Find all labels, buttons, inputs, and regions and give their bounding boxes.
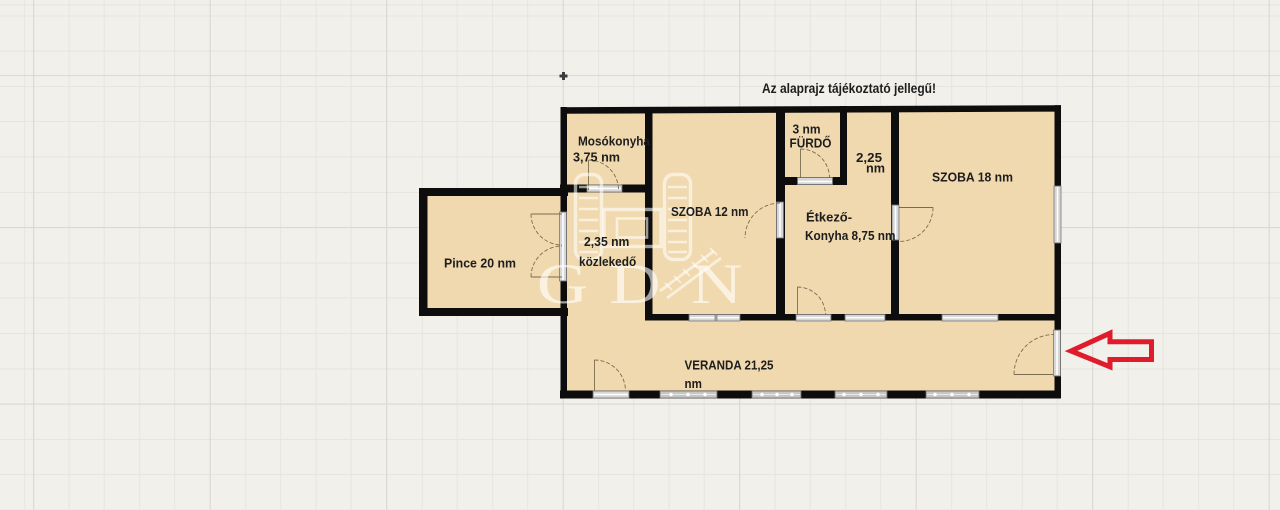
svg-text:Az alaprajz tájékoztató jelleg: Az alaprajz tájékoztató jellegű! [762,81,936,96]
svg-text:Konyha 8,75 nm: Konyha 8,75 nm [805,228,896,243]
svg-text:2,35 nm: 2,35 nm [584,234,629,249]
svg-text:nm: nm [866,161,885,176]
svg-text:FÜRDŐ: FÜRDŐ [790,136,832,151]
svg-text:Étkező-: Étkező- [806,210,852,225]
svg-text:3 nm: 3 nm [793,122,821,137]
svg-text:SZOBA 18 nm: SZOBA 18 nm [932,170,1013,185]
svg-text:közlekedő: közlekedő [579,254,636,269]
svg-text:nm: nm [685,376,702,391]
svg-text:VERANDA 21,25: VERANDA 21,25 [685,358,774,373]
svg-text:Mosókonyha: Mosókonyha [578,134,651,149]
svg-text:3,75 nm: 3,75 nm [573,150,620,165]
svg-text:SZOBA 12 nm: SZOBA 12 nm [671,204,749,219]
svg-text:GDN: GDN [537,253,743,316]
svg-text:Pince 20 nm: Pince 20 nm [444,256,516,271]
